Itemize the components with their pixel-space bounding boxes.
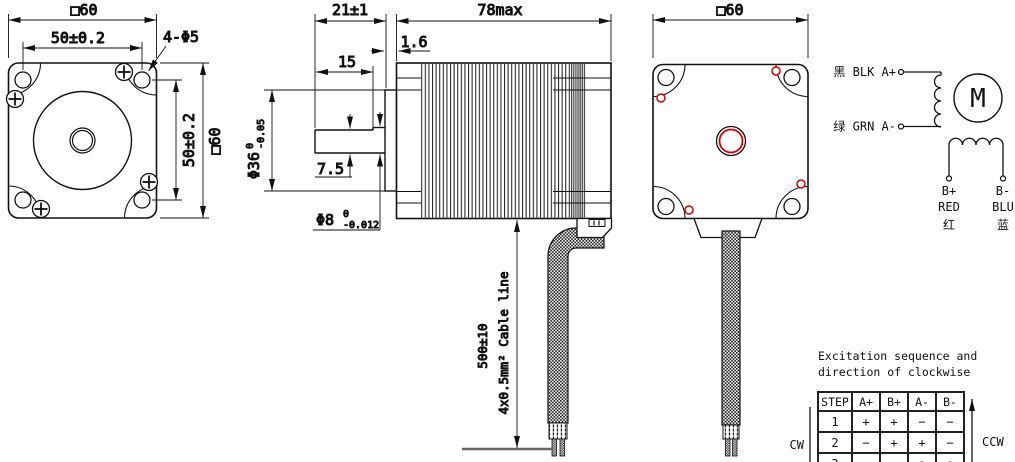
excitation-table: STEP A+ B+ A- B- 1 + + − − 2 − + + − 3 −… [817,391,965,462]
col-header-step: STEP [818,392,852,411]
terminal-dot [899,70,904,75]
cable-clamp-mark [589,220,605,227]
phase-a-coil [935,72,941,127]
excitation-table-title: Excitation sequence and direction of clo… [818,349,977,380]
tie-rod-screw-marker [772,67,780,75]
mounting-hole [134,72,150,88]
dim-label: 21±1 [332,1,368,19]
stator-laminations-dense [571,64,586,218]
dim-label-rotated: 50±0.2 [180,113,198,167]
phase-a-plus-label: 黑 BLK A+ [833,65,896,79]
b-plus-color-label: RED [938,200,960,214]
cell-value: − [880,453,908,462]
pilot-boss [385,90,397,191]
dim-label: 4-Φ5 [163,28,199,46]
dim-label-rotated: Φ36 0 -0.05 [245,119,267,179]
terminal-dot [899,124,904,129]
mounting-hole [15,192,31,208]
table-row: 1 + + − − [818,411,964,432]
ccw-label: CCW [982,435,1004,449]
cell-value: + [852,411,880,432]
b-minus-cn-label: 蓝 [997,218,1009,232]
mounting-hole [784,199,800,215]
cw-label: CW [790,438,805,452]
dim-label-rotated: □60 [206,127,224,154]
tol-label: -0.012 [343,220,379,231]
cell-value: + [908,432,936,453]
mounting-hole [658,199,674,215]
table-row: 2 − + + − [818,432,964,453]
phase-b-coil [949,138,1003,176]
tie-rod-screw-marker [657,94,665,102]
tol-label: 0 [343,209,349,220]
dim-flat-length [316,66,373,129]
dim-label: 1.6 [400,33,427,51]
cable-transition [723,425,739,439]
cable-spec-label: 4x0.5mm² Cable line [496,272,511,415]
dim-label: Φ8 [316,211,334,229]
col-header-a-plus: A+ [852,392,880,411]
wiring-diagram: 黑 BLK A+ 绿 GRN A- M B+ RED 红 B- BLU 蓝 [833,65,1013,232]
svg-text:□60: □60 [206,127,224,154]
tie-rod-screw-marker [685,206,693,214]
cable-transition [549,423,567,439]
dim-label-rotated: 500±10 [475,323,490,368]
svg-text:-0.05: -0.05 [256,119,267,149]
cell-value: + [936,453,964,462]
col-header-a-minus: A- [908,392,936,411]
cell-value: − [936,432,964,453]
svg-text:Φ36: Φ36 [245,152,263,179]
stator-laminations [421,64,586,218]
phase-a-minus-label: 绿 GRN A- [833,119,896,134]
motor-symbol-letter: M [970,84,986,114]
cell-step: 3 [818,453,852,462]
dim-body-length [397,14,612,61]
corner-screw-icon [141,174,158,191]
b-minus-label: B- [996,184,1010,198]
cell-value: − [936,411,964,432]
lead-wire [560,439,565,456]
table-row: 3 − − + + [818,453,964,462]
lead-wire [552,439,557,456]
cell-value: − [852,432,880,453]
dim-label: 50±0.2 [51,29,105,47]
mounting-hole [15,72,31,88]
svg-text:50±0.2: 50±0.2 [180,113,198,167]
dim-label: □60 [716,1,743,19]
mounting-hole [784,70,800,86]
cable-braid-rear [722,231,740,425]
dim-label: □60 [70,1,97,19]
cell-step: 1 [818,411,852,432]
cell-value: + [880,411,908,432]
svg-text:0: 0 [245,143,256,149]
tie-rod-screw-marker [797,180,805,188]
dim-label: 7.5 [317,160,344,178]
svg-text:4x0.5mm² Cable line: 4x0.5mm² Cable line [496,272,511,415]
front-view: □60 50±0.2 4-Φ5 50±0.2 □60 [7,1,225,218]
stepper-motor-drawing-page: □60 50±0.2 4-Φ5 50±0.2 □60 [0,0,1015,462]
b-minus-color-label: BLU [992,200,1014,214]
b-plus-label: B+ [942,184,956,198]
corner-screw-icon [116,64,133,81]
side-view: 21±1 78max 1.6 15 Φ36 0 -0.05 [245,1,612,456]
cell-value: − [852,453,880,462]
dim-label: 15 [338,53,356,71]
b-plus-cn-label: 红 [943,217,955,232]
motor-rear-outline [653,65,808,219]
lead-wire [733,439,738,456]
excitation-table-title-line2: direction of clockwise [818,365,977,381]
col-header-b-minus: B- [936,392,964,411]
svg-text:500±10: 500±10 [475,323,490,368]
cell-step: 2 [818,432,852,453]
cable-braid-side [548,228,604,423]
lead-wire [726,439,731,456]
dim-label: 78max [477,1,522,19]
rear-view: □60 [653,1,808,456]
cell-value: − [908,411,936,432]
mounting-hole [134,192,150,208]
cell-value: + [880,432,908,453]
shaft-outline [315,128,385,154]
dim-rear-width [653,14,808,58]
excitation-table-title-line1: Excitation sequence and [818,349,977,365]
terminal-dot [947,176,952,181]
leader-line [149,46,167,71]
dim-shaft-length [315,14,386,128]
mounting-hole [658,70,674,86]
col-header-b-plus: B+ [880,392,908,411]
table-header-row: STEP A+ B+ A- B- [818,392,964,411]
terminal-dot [1001,176,1006,181]
corner-screw-icon [7,91,24,108]
cell-value: + [908,453,936,462]
corner-screw-icon [33,201,50,218]
